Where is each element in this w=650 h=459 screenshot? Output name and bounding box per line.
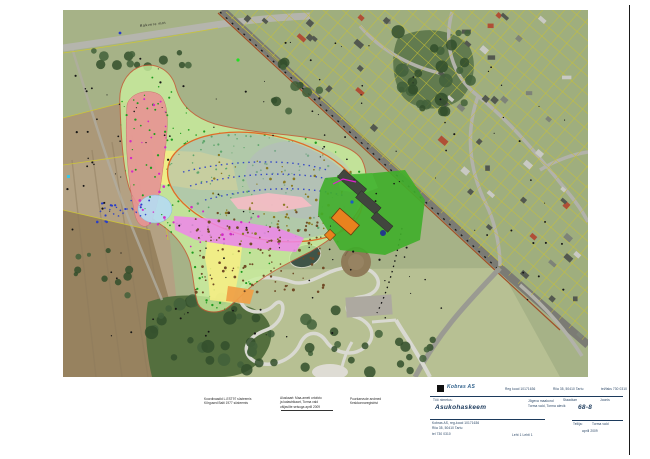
dark-blue-circle bbox=[380, 230, 386, 236]
bare-ground-inner bbox=[348, 254, 364, 270]
parking-lot bbox=[345, 294, 392, 317]
drawing-label: Joonis bbox=[600, 398, 610, 402]
company-phone: tel/faks 730 0310 bbox=[601, 387, 627, 391]
blue-point-nw bbox=[119, 32, 122, 35]
project-line-1: Jõgeva maakond bbox=[528, 399, 554, 403]
green-point bbox=[236, 58, 239, 61]
stage-label: Staadium bbox=[563, 398, 577, 402]
address-line-1: Kobras AS, reg-kood 10171636 bbox=[432, 421, 479, 425]
client-label: Tellija: bbox=[573, 422, 583, 426]
note-line: Kõrgused Balti 1977 süsteemis bbox=[204, 401, 276, 405]
note-coordinates: Koordinaadid L-EST97 süsteemis Kõrgused … bbox=[204, 397, 276, 406]
drawing-title: Asukohaskeem bbox=[435, 404, 486, 411]
sheet-info: Leht 1 Lehti 1 bbox=[512, 433, 533, 437]
address-line-3: tel 730 0310 bbox=[432, 432, 451, 436]
titleblock-rule-top bbox=[430, 396, 623, 397]
company-logo bbox=[437, 385, 444, 392]
blue-point bbox=[350, 200, 353, 203]
note-wells: Puurkaevude andmed Keskkonnaregistrist bbox=[350, 397, 420, 406]
sheet-frame-line bbox=[629, 5, 630, 455]
company-address: Riia 35, 50410 Tartu bbox=[553, 387, 583, 391]
photo-layers: Rakvere mnt bbox=[63, 10, 588, 377]
titleblock-rule-right bbox=[572, 420, 623, 421]
company-regcode: Reg kood 10171636 bbox=[505, 387, 535, 391]
map-sheet: Rakvere mnt Koordinaadid L-EST97 süsteem… bbox=[0, 0, 650, 459]
work-label: Töö nimetus: bbox=[433, 398, 453, 402]
client-value: Torma vald bbox=[592, 422, 609, 426]
address-line-2: Riia 35, 50410 Tartu bbox=[432, 426, 462, 430]
company-name: Kobras AS bbox=[447, 384, 475, 390]
project-line-2: Torma vald, Torma alevik bbox=[528, 404, 566, 408]
titleblock-rule-left bbox=[430, 419, 545, 420]
cyan-square bbox=[67, 175, 70, 178]
date-value: aprill 2009 bbox=[582, 429, 598, 433]
drawing-number: 68-8 bbox=[578, 404, 592, 411]
aerial-map: Rakvere mnt bbox=[63, 10, 588, 377]
note-line: Keskkonnaregistrist bbox=[350, 401, 420, 405]
note-basemap: Aluskaart: Maa-ameti ortofoto ja katastr… bbox=[280, 396, 352, 409]
note-underline bbox=[281, 410, 333, 411]
note-line: väljavõte seisuga aprill 2009 bbox=[280, 405, 352, 409]
company-info-row: Reg kood 10171636 Riia 35, 50410 Tartu t… bbox=[505, 387, 627, 391]
